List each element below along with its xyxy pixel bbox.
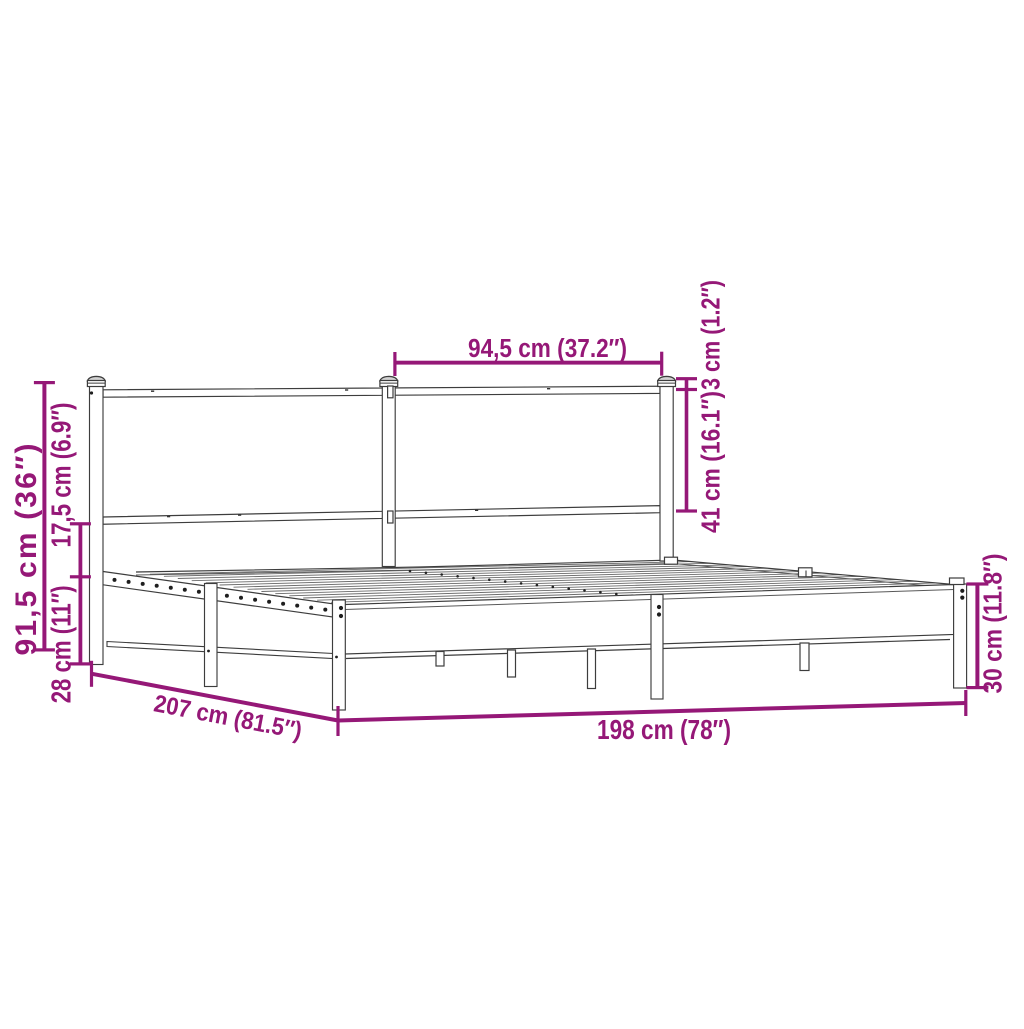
svg-text:41 cm (16.1″): 41 cm (16.1″) [696,391,726,533]
svg-text:30 cm (11.8″): 30 cm (11.8″) [978,554,1008,694]
svg-text:28 cm (11″): 28 cm (11″) [46,585,77,703]
svg-text:198 cm (78″): 198 cm (78″) [597,714,731,745]
svg-text:3 cm (1.2″): 3 cm (1.2″) [696,280,726,390]
svg-text:94,5 cm (37.2″): 94,5 cm (37.2″) [468,335,627,363]
svg-text:91,5 cm (36″): 91,5 cm (36″) [10,444,43,656]
svg-text:17,5 cm (6.9″): 17,5 cm (6.9″) [46,403,77,548]
